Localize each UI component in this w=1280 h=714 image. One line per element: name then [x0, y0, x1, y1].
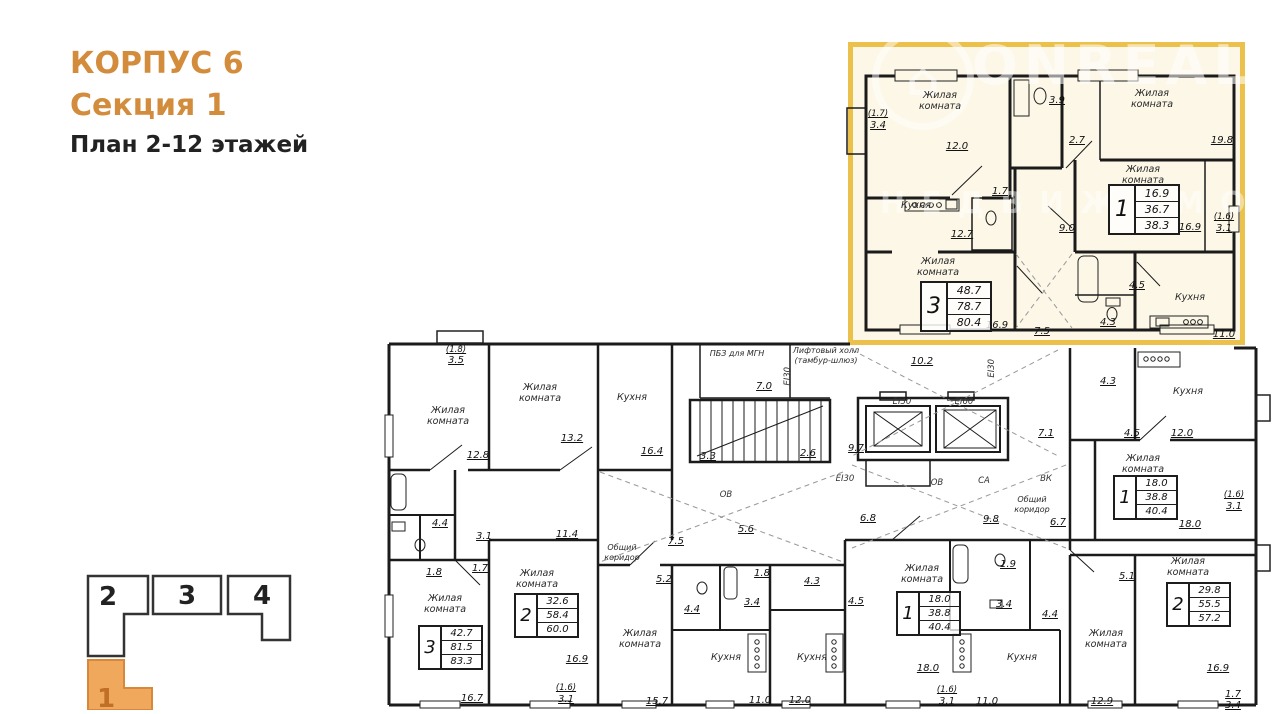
dimension-label: 15.7: [646, 697, 668, 707]
dimension-label: 1.7: [472, 564, 488, 574]
apartment-info-table: 1 16.9 36.7 38.3: [1108, 184, 1180, 235]
dimension-label: 1.9: [1000, 560, 1016, 570]
dimension-label: 3.5: [448, 356, 464, 366]
dimension-label: 16.9: [1207, 664, 1229, 674]
dimension-label: 13.2: [561, 434, 583, 444]
fire-rating-label: EI60: [955, 398, 974, 407]
fire-rating-label: EI30: [784, 367, 793, 386]
living-area: 18.0: [1137, 477, 1176, 491]
dimension-label: 3.1: [558, 695, 574, 705]
dimension-label: 11.0: [976, 697, 998, 707]
dimension-label: 5.1: [1119, 572, 1135, 582]
apartment-info-table: 2 29.8 55.5 57.2: [1166, 582, 1231, 627]
corridor-label: Общий коридор: [594, 543, 650, 562]
elevator-shafts: [858, 392, 1008, 486]
dimension-label: 9.8: [983, 515, 999, 525]
usable-area: 38.8: [1137, 491, 1176, 505]
living-area: 18.0: [920, 593, 959, 607]
dimension-label: 4.4: [432, 519, 448, 529]
dimension-label: 10.2: [911, 357, 933, 367]
dimension-label: 4.3: [804, 577, 820, 587]
dimension-label: 7.5: [668, 537, 684, 547]
room-label: Жилая комната: [902, 256, 974, 279]
total-area: 80.4: [948, 315, 990, 330]
building-title: КОРПУС 6: [70, 46, 244, 81]
room-label: Жилая комната: [501, 568, 573, 591]
room-label: Кухня: [617, 392, 647, 403]
living-area: 42.7: [442, 627, 481, 641]
dimension-label: 12.0: [946, 142, 968, 152]
room-label: Жилая комната: [904, 90, 976, 113]
room-label: Кухня: [711, 652, 741, 663]
room-label: Жилая комната: [1070, 628, 1142, 651]
shaft-label: ОВ: [720, 491, 733, 500]
dimension-label: 1.7: [1225, 690, 1241, 700]
usable-area: 58.4: [538, 609, 577, 623]
safe-zone-label: ПБЗ для МГН: [709, 349, 765, 359]
room-label: Кухня: [797, 652, 827, 663]
fire-rating-label: EI30: [988, 359, 997, 378]
total-area: 57.2: [1190, 612, 1229, 625]
total-area: 40.4: [1137, 505, 1176, 518]
dimension-label: 7.5: [1034, 327, 1050, 337]
dimension-label: 16.7: [461, 694, 483, 704]
dimension-label: 12.0: [789, 696, 811, 706]
dimension-label: (1.8): [446, 346, 466, 355]
apartment-info-table: 1 18.0 38.8 40.4: [1113, 475, 1178, 520]
dimension-label: 5.2: [656, 575, 672, 585]
dimension-label: 4.5: [1124, 429, 1140, 439]
room-label: Кухня: [1175, 292, 1205, 303]
elevator-hall-label: Лифтовый холл (тамбур-шлюз): [784, 346, 868, 365]
fire-rating-label: EI30: [836, 475, 855, 484]
dimension-label: 3.9: [1049, 96, 1065, 106]
dimension-label: 16.4: [641, 447, 663, 457]
dimension-label: 11.0: [1213, 330, 1235, 340]
section-title: Секция 1: [70, 88, 227, 123]
room-label: Жилая комната: [1116, 88, 1188, 111]
apartment-info-table: 1 18.0 38.8 40.4: [896, 591, 961, 636]
usable-area: 55.5: [1190, 598, 1229, 612]
total-area: 83.3: [442, 655, 481, 668]
dimension-label: (1.6): [1214, 213, 1234, 222]
dimension-label: 12.8: [467, 451, 489, 461]
living-area: 48.7: [948, 283, 990, 299]
dimension-label: 1.7: [992, 187, 1008, 197]
dimension-label: 5.6: [738, 525, 754, 535]
dimension-label: 7.0: [756, 382, 772, 392]
usable-area: 36.7: [1136, 202, 1178, 218]
dimension-label: 3.1: [476, 532, 492, 542]
floors-subtitle: План 2-12 этажей: [70, 132, 308, 158]
dimension-label: 18.0: [1179, 520, 1201, 530]
living-area: 29.8: [1190, 584, 1229, 598]
living-area: 32.6: [538, 595, 577, 609]
room-label: Кухня: [901, 200, 931, 211]
dimension-label: (1.7): [868, 110, 888, 119]
dimension-label: 3.4: [996, 600, 1012, 610]
dimension-label: 6.8: [860, 514, 876, 524]
apartment-info-table: 3 42.7 81.5 83.3: [418, 625, 483, 670]
dimension-label: 3.1: [1216, 224, 1232, 234]
dimension-label: (1.6): [1224, 491, 1244, 500]
shaft-label: ВК: [1040, 475, 1052, 484]
dimension-label: 12.0: [1171, 429, 1193, 439]
usable-area: 38.8: [920, 607, 959, 621]
dimension-label: 16.9: [1179, 223, 1201, 233]
dimension-label: 3.3: [700, 452, 716, 462]
apartment-info-table: 3 48.7 78.7 80.4: [920, 281, 992, 332]
room-label: Жилая комната: [409, 593, 481, 616]
dimension-label: 1.8: [426, 568, 442, 578]
dimension-label: 16.9: [566, 655, 588, 665]
dimension-label: 19.8: [1211, 136, 1233, 146]
rooms-count: 2: [1168, 584, 1190, 625]
usable-area: 81.5: [442, 641, 481, 655]
room-label: Жилая комната: [886, 563, 958, 586]
dimension-label: 4.4: [684, 605, 700, 615]
dimension-label: 7.1: [1038, 429, 1054, 439]
usable-area: 78.7: [948, 299, 990, 315]
corridor-label: Общий коридор: [1004, 495, 1060, 514]
dimension-label: 4.3: [1100, 318, 1116, 328]
room-label: Жилая комната: [1107, 453, 1179, 476]
dimension-label: 1.8: [754, 569, 770, 579]
dimension-label: 9.7: [848, 444, 864, 454]
room-label: Жилая комната: [1152, 556, 1224, 579]
room-label: Жилая комната: [504, 382, 576, 405]
section-nav-label-3: 3: [178, 581, 196, 611]
dimension-label: 3.4: [744, 598, 760, 608]
dimension-label: 9.0: [1059, 224, 1075, 234]
section-nav-label-4: 4: [253, 581, 271, 611]
section-2-shape: [88, 576, 148, 656]
total-area: 60.0: [538, 623, 577, 636]
floor-plan-page: { "header": { "building": "КОРПУС 6", "s…: [0, 0, 1280, 710]
dimension-label: (1.6): [556, 684, 576, 693]
dimension-label: 4.5: [1129, 281, 1145, 291]
dimension-label: 3.1: [1226, 502, 1242, 512]
rooms-count: 3: [420, 627, 442, 668]
shaft-label: СА: [978, 477, 990, 486]
room-label: Жилая комната: [604, 628, 676, 651]
dimension-label: 11.4: [556, 530, 578, 540]
dimension-label: 11.0: [749, 696, 771, 706]
dimension-label: 12.7: [951, 230, 973, 240]
dimension-label: 2.6: [800, 449, 816, 459]
dimension-label: 6.7: [1050, 518, 1066, 528]
section-nav-label-2: 2: [99, 582, 117, 612]
total-area: 38.3: [1136, 218, 1178, 233]
rooms-count: 2: [516, 595, 538, 636]
total-area: 40.4: [920, 621, 959, 634]
dimension-label: 3.4: [870, 121, 886, 131]
dimension-label: (1.6): [937, 686, 957, 695]
dimension-label: 4.4: [1042, 610, 1058, 620]
rooms-count: 3: [922, 283, 948, 330]
dimension-label: 12.9: [1091, 697, 1113, 707]
rooms-count: 1: [1115, 477, 1137, 518]
shaft-label: ОВ: [931, 479, 944, 488]
dimension-label: 3.1: [939, 697, 955, 707]
rooms-count: 1: [1110, 186, 1136, 233]
room-label: Кухня: [1007, 652, 1037, 663]
rooms-count: 1: [898, 593, 920, 634]
dimension-label: 4.5: [848, 597, 864, 607]
dimension-label: 4.3: [1100, 377, 1116, 387]
apartment-info-table: 2 32.6 58.4 60.0: [514, 593, 579, 638]
living-area: 16.9: [1136, 186, 1178, 202]
room-label: Жилая комната: [412, 405, 484, 428]
room-label: Кухня: [1173, 386, 1203, 397]
fire-rating-label: EI30: [893, 398, 912, 407]
dimension-label: 18.0: [917, 664, 939, 674]
dimension-label: 2.7: [1069, 136, 1085, 146]
